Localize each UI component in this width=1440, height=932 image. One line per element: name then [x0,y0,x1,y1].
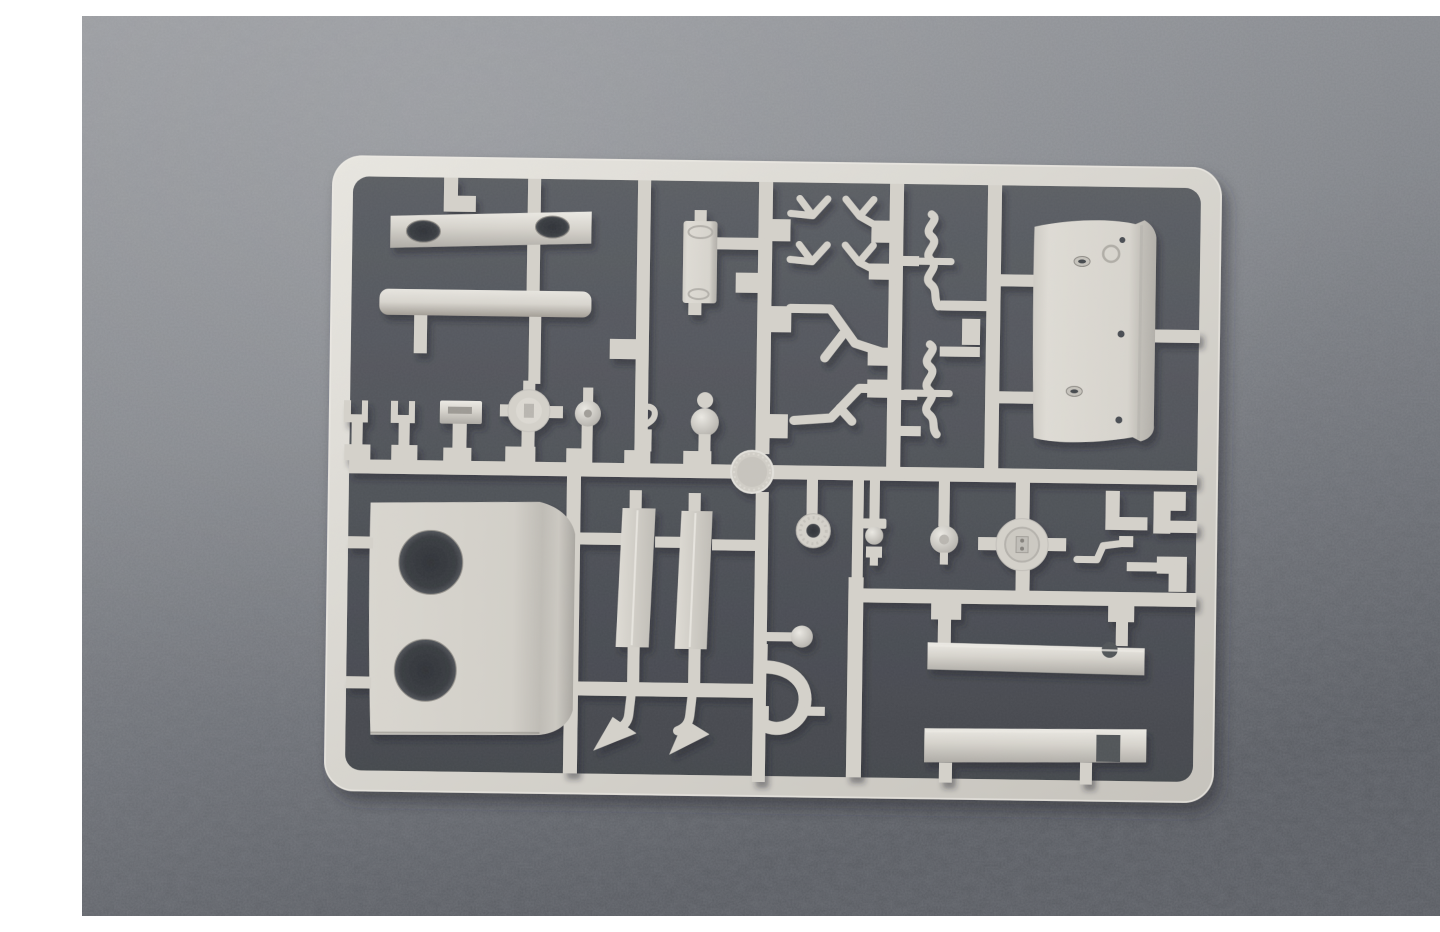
photo-left-margin [40,16,82,916]
photo-grain [82,16,1440,916]
sprue-photo [40,16,1440,916]
photo-canvas [40,16,1440,916]
